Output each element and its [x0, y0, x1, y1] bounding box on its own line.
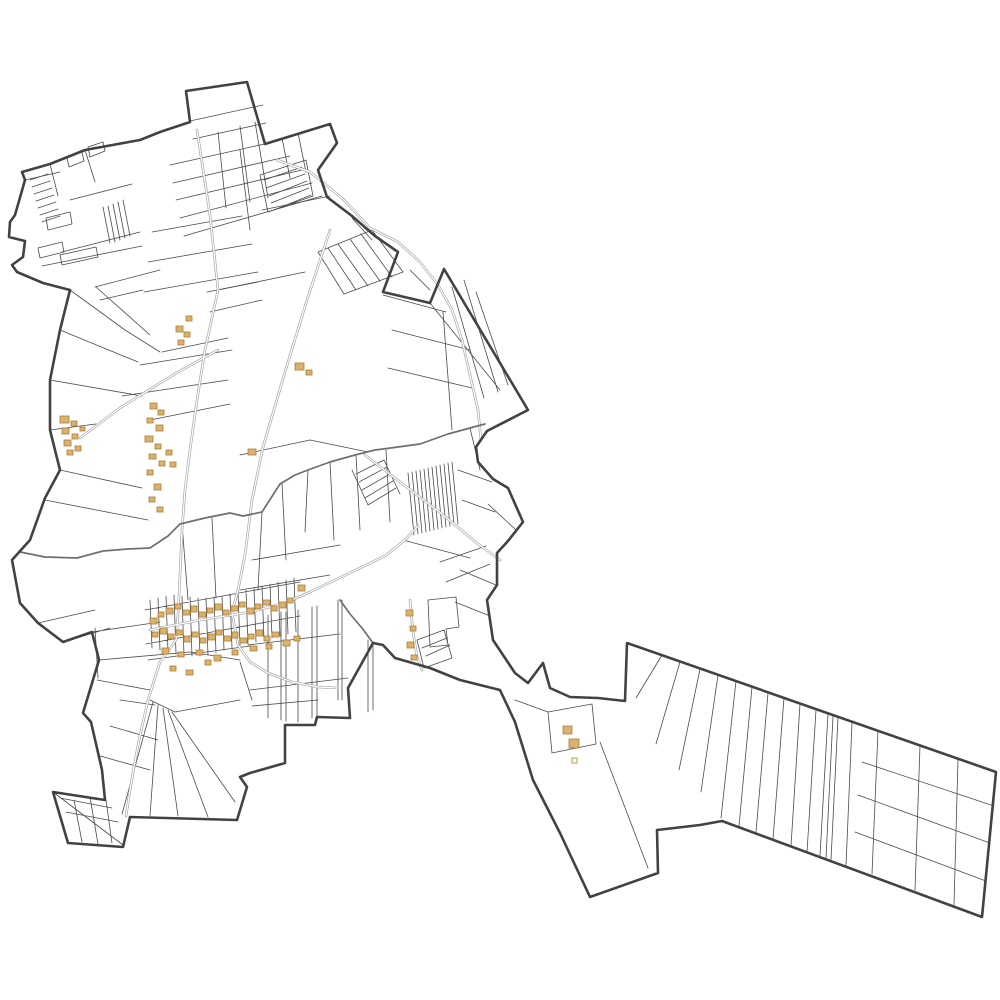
map-viewport [0, 0, 1000, 1000]
building-outline [572, 758, 577, 763]
cadastral-map [0, 0, 1000, 1000]
